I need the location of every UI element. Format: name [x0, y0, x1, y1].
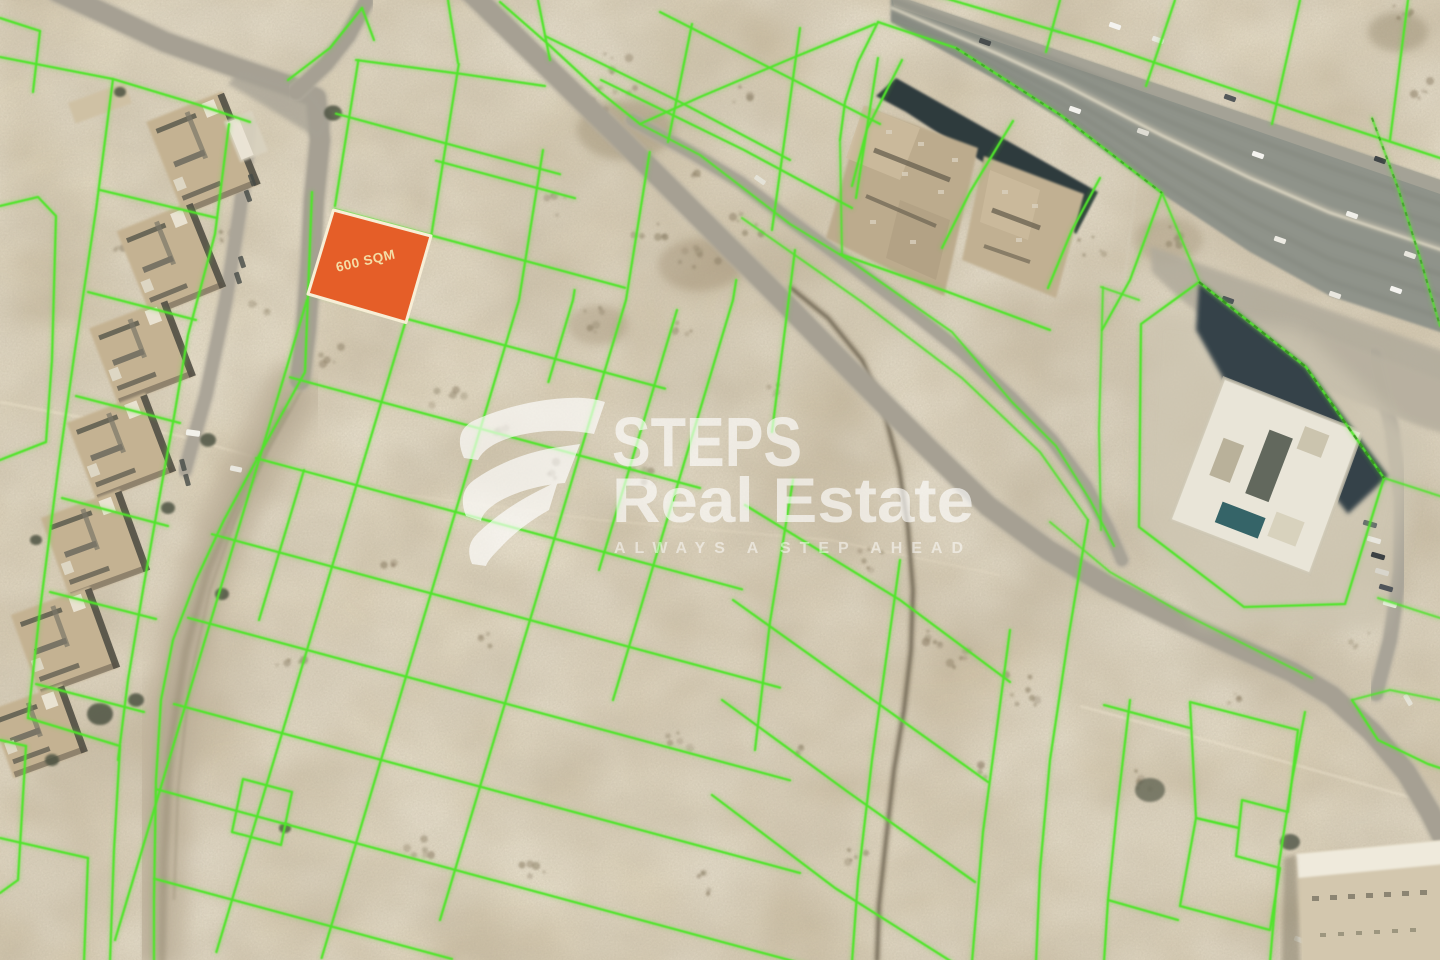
- svg-text:Real Estate: Real Estate: [612, 466, 974, 536]
- svg-text:ALWAYS A STEP AHEAD: ALWAYS A STEP AHEAD: [614, 540, 972, 557]
